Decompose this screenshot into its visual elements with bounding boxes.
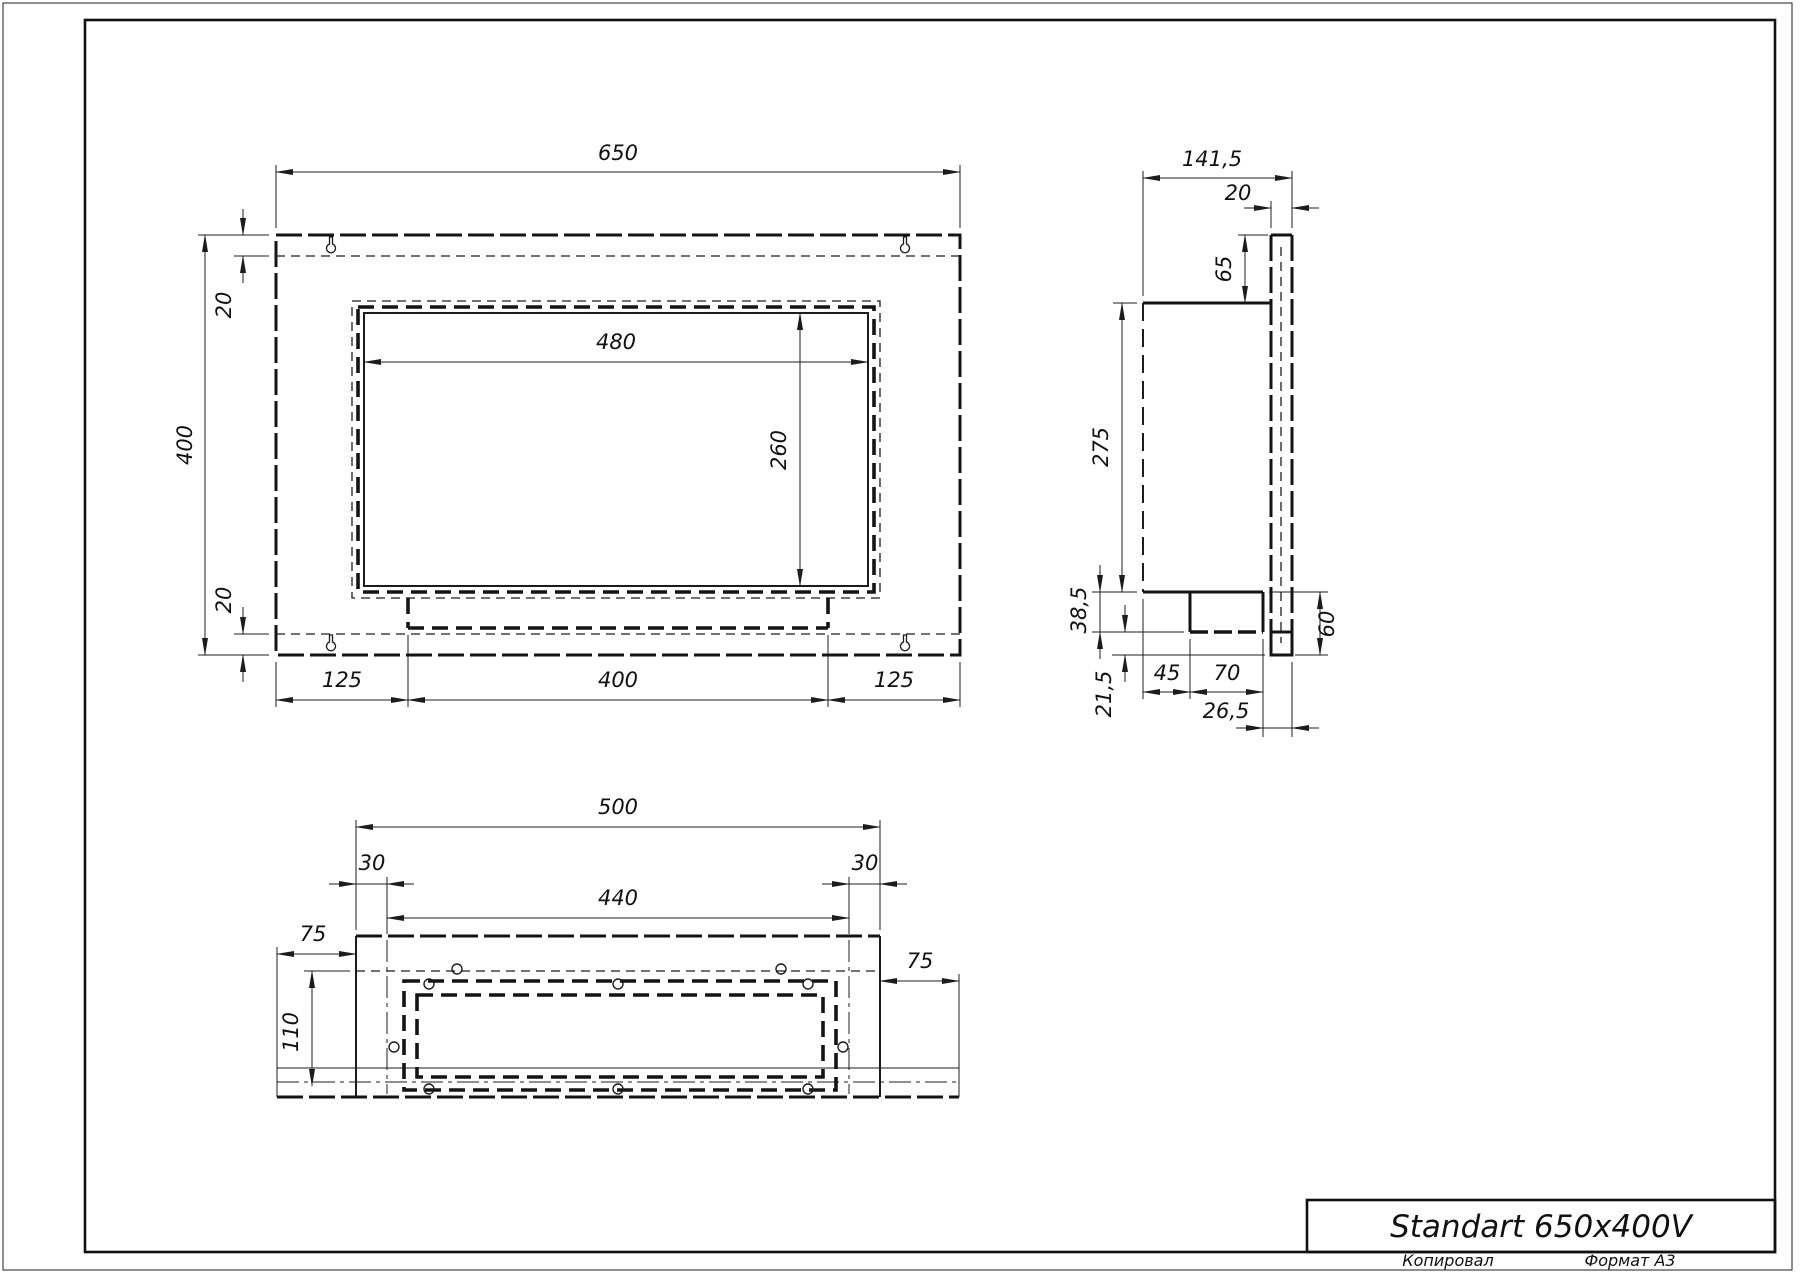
footer-copied-label: Копировал (1402, 1251, 1493, 1270)
dim-bottom-flange-left: 75 (300, 922, 327, 946)
dim-front-bottom-fold: 20 (212, 587, 236, 614)
dim-side-tray-offset: 45 (1154, 661, 1181, 685)
drawing-title: Standart 650x400V (1390, 1209, 1695, 1245)
bottom-view: 500 30 30 440 75 110 75 (277, 795, 959, 1097)
dim-bottom-box-width: 500 (598, 795, 638, 819)
dim-front-right-offset: 125 (874, 668, 914, 692)
title-block: Standart 650x400V (1307, 1200, 1775, 1252)
dim-front-center: 400 (598, 668, 638, 692)
keyhole-slot-icon (327, 237, 910, 651)
sheet-footer: Копировал Формат А3 (1402, 1251, 1675, 1270)
dim-side-depth: 141,5 (1182, 147, 1242, 171)
screw-hole-icon (389, 964, 848, 1094)
dim-side-bottom-gap: 21,5 (1092, 671, 1116, 718)
front-view: 650 400 20 20 480 260 125 400 125 (173, 141, 960, 707)
drawing-canvas: 650 400 20 20 480 260 125 400 125 (0, 0, 1800, 1273)
dim-bottom-inner-width: 440 (598, 886, 638, 910)
dim-front-height: 400 (173, 425, 197, 465)
dim-side-tray-width: 70 (1214, 661, 1241, 685)
dim-bottom-flange-right: 75 (907, 949, 934, 973)
side-view: 141,5 20 65 275 38,5 21,5 45 70 (1067, 147, 1339, 737)
dim-side-flange-thickness: 20 (1225, 181, 1252, 205)
dim-front-width: 650 (598, 141, 638, 165)
dim-opening-width: 480 (596, 330, 636, 354)
dim-opening-height: 260 (767, 430, 791, 470)
drawing-frame (3, 3, 1792, 1270)
footer-format-label: Формат А3 (1584, 1251, 1675, 1270)
dim-front-left-offset: 125 (322, 668, 362, 692)
dim-bottom-inset-right: 30 (852, 851, 879, 875)
dim-bottom-inset-left: 30 (359, 851, 386, 875)
dim-front-top-fold: 20 (212, 292, 236, 319)
drawing-sheet: 650 400 20 20 480 260 125 400 125 (0, 0, 1800, 1273)
dim-side-tray-height: 38,5 (1067, 587, 1091, 634)
dim-side-tray-to-front: 26,5 (1203, 699, 1250, 723)
dim-side-front-lip: 60 (1315, 611, 1339, 638)
dim-bottom-inner-depth: 110 (279, 1012, 303, 1052)
dim-side-body-depth: 275 (1089, 427, 1113, 467)
dim-side-flange-top: 65 (1212, 256, 1236, 283)
